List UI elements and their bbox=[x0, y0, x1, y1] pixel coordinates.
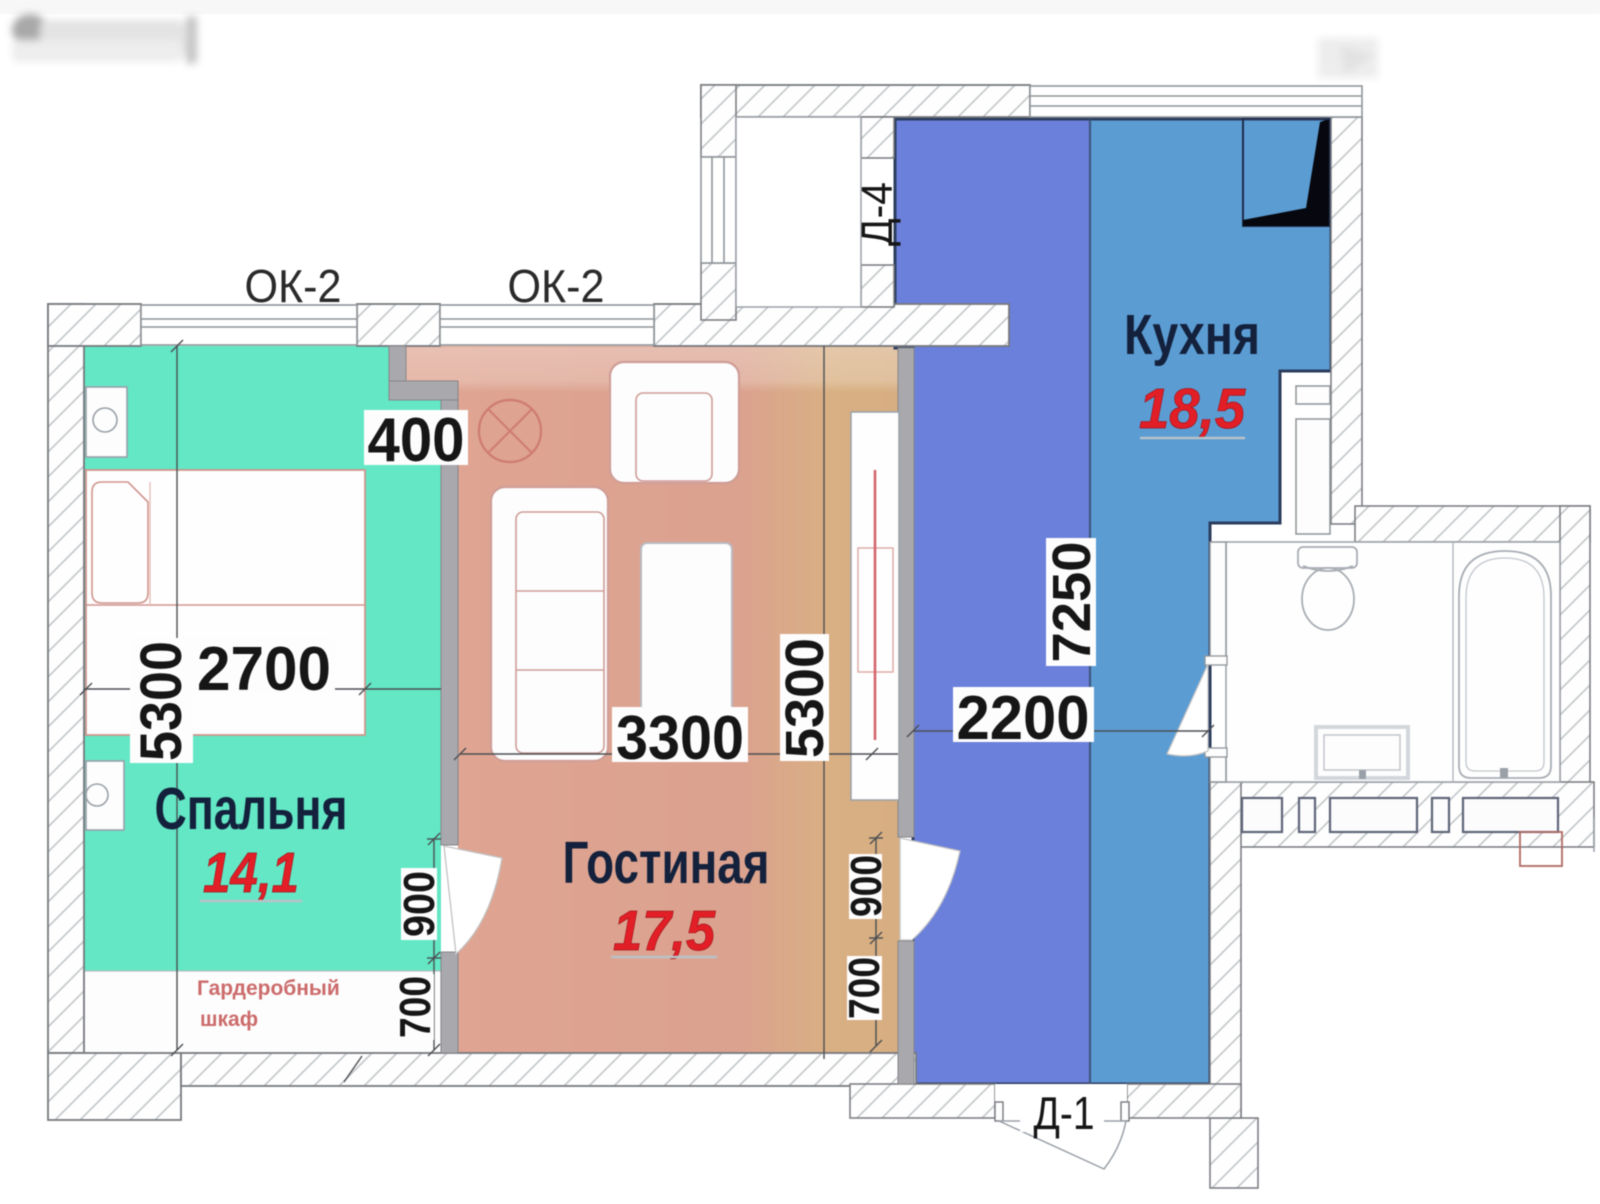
svg-text:5300: 5300 bbox=[129, 641, 194, 761]
svg-text:ОК-2: ОК-2 bbox=[508, 260, 605, 312]
svg-text:Кухня: Кухня bbox=[1124, 303, 1260, 367]
svg-text:900: 900 bbox=[842, 855, 891, 917]
svg-text:17,5: 17,5 bbox=[613, 899, 716, 963]
svg-text:шкаф: шкаф bbox=[200, 1008, 258, 1031]
svg-text:400: 400 bbox=[368, 406, 465, 475]
svg-text:Спальня: Спальня bbox=[155, 776, 348, 842]
svg-text:Гостиная: Гостиная bbox=[563, 830, 770, 896]
svg-text:ОК-2: ОК-2 bbox=[245, 260, 342, 312]
svg-text:900: 900 bbox=[395, 871, 444, 937]
svg-text:5300: 5300 bbox=[775, 638, 835, 758]
svg-text:14,1: 14,1 bbox=[203, 841, 299, 905]
svg-text:18,5: 18,5 bbox=[1139, 377, 1246, 441]
svg-text:3300: 3300 bbox=[616, 704, 744, 773]
svg-text:Д-1: Д-1 bbox=[1034, 1087, 1095, 1139]
svg-text:Гардеробный: Гардеробный bbox=[197, 977, 340, 1000]
svg-text:700: 700 bbox=[391, 976, 440, 1038]
svg-text:2200: 2200 bbox=[957, 684, 1090, 753]
svg-text:700: 700 bbox=[840, 957, 889, 1019]
svg-text:2700: 2700 bbox=[197, 635, 331, 704]
svg-text:Д-4: Д-4 bbox=[853, 182, 902, 246]
svg-text:7250: 7250 bbox=[1042, 542, 1102, 663]
